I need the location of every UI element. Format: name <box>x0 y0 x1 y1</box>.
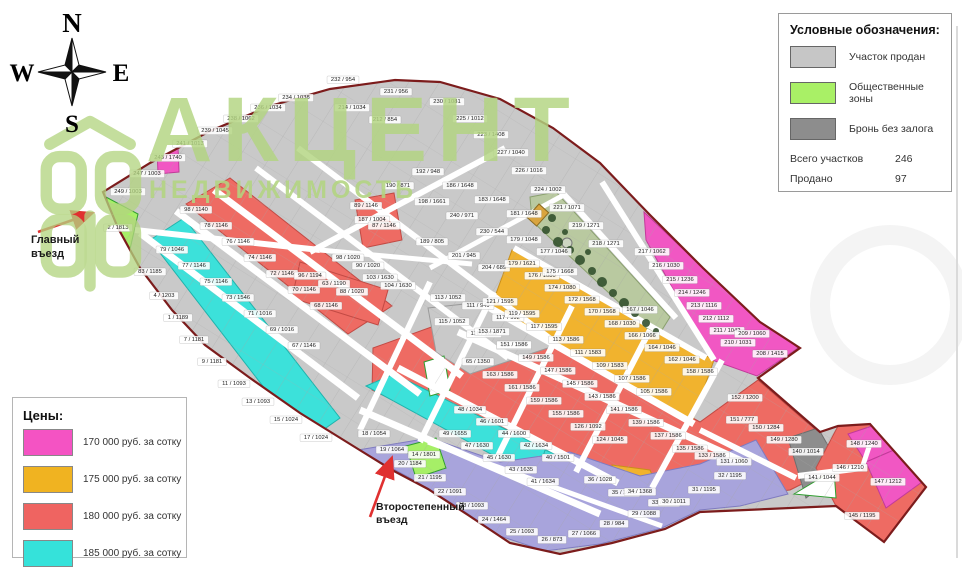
plot-label-text: 231 / 956 <box>384 89 408 95</box>
plot-label-text: 230 / 1081 <box>433 99 460 105</box>
plot-label-text: 159 / 1586 <box>530 398 557 404</box>
plot-label-text: 186 / 1648 <box>446 183 473 189</box>
plot-label-text: 1 / 1189 <box>168 315 189 321</box>
price-panel: Цены: 170 000 руб. за сотку 175 000 руб.… <box>12 397 187 558</box>
plot-label-text: 79 / 1046 <box>160 247 184 253</box>
compass-w: W <box>10 60 35 87</box>
plot-label-text: 238 / 1062 <box>227 116 254 122</box>
plot-label-text: 9 / 1181 <box>202 359 223 365</box>
plot-label-text: 212 / 854 <box>373 117 398 123</box>
plot-label-text: 42 / 1634 <box>524 443 549 449</box>
plot-label-text: 121 / 1595 <box>486 299 513 305</box>
plot-label-text: 44 / 1600 <box>502 431 526 437</box>
price-item-170: 170 000 руб. за сотку <box>23 429 176 456</box>
plot-label-text: 103 / 1630 <box>366 275 393 281</box>
plot-label-text: 247 / 1003 <box>133 171 160 177</box>
plot-label-text: 28 / 984 <box>604 521 626 527</box>
plot-label-text: 41 / 1634 <box>531 479 556 485</box>
compass-e: E <box>113 60 130 87</box>
plot-label-text: 73 / 1546 <box>226 295 250 301</box>
plot-label-text: 17 / 1024 <box>304 435 329 441</box>
plot-label-text: 22 / 1091 <box>438 489 462 495</box>
plot-label-text: 113 / 1052 <box>435 295 462 301</box>
plot-label-text: 31 / 1195 <box>692 487 716 493</box>
legend-item-public: Общественные зоны <box>790 81 940 105</box>
plot-label-text: 139 / 1586 <box>632 420 659 426</box>
plot-label-text: 239 / 1045 <box>201 128 228 134</box>
main-entrance-arrow <box>38 214 90 232</box>
plot-label-text: 192 / 948 <box>416 169 440 175</box>
plot-label-text: 164 / 1046 <box>648 345 675 351</box>
plot-label-text: 69 / 1016 <box>270 327 294 333</box>
plot-label-text: 170 / 1568 <box>588 309 615 315</box>
plot-label-text: 13 / 1093 <box>246 399 270 405</box>
plot-label-text: 236 / 1034 <box>254 105 282 111</box>
plot-label-text: 11 / 1093 <box>222 381 246 387</box>
plot-label-text: 74 / 1146 <box>248 255 272 261</box>
legend-swatch-public <box>790 82 836 104</box>
plot-label-text: 68 / 1146 <box>314 303 338 309</box>
legend-panel: Условные обозначения: Участок продан Общ… <box>778 13 952 192</box>
plot-label-text: 83 / 1185 <box>138 269 162 275</box>
price-swatch-red <box>23 503 73 530</box>
plot-label-text: 150 / 1284 <box>752 425 780 431</box>
plot-label-text: 241 / 1013 <box>176 141 203 147</box>
plot-label-text: 221 / 1071 <box>553 205 580 211</box>
plot-label-text: 18 / 1054 <box>362 431 387 437</box>
plot-label-text: 210 / 1031 <box>724 340 751 346</box>
plot-label-text: 209 / 1060 <box>738 331 765 337</box>
plot-label-text: 135 / 1586 <box>676 446 703 452</box>
plot-label-text: 98 / 1020 <box>336 255 360 261</box>
plot-label-text: 230 / 544 <box>480 229 505 235</box>
plot-label-text: 149 / 1280 <box>770 437 797 443</box>
plot-label-text: 141 / 1044 <box>808 475 836 481</box>
plot-label-text: 32 / 1195 <box>718 473 742 479</box>
plot-label-text: 30 / 1011 <box>662 499 686 505</box>
plot-label-text: 109 / 1583 <box>596 363 623 369</box>
plot-label-text: 183 / 1648 <box>478 197 505 203</box>
plot-label-text: 219 / 1271 <box>572 223 599 229</box>
legend-stat-sold: Продано 97 <box>790 173 940 185</box>
plot-label-text: 137 / 1586 <box>654 433 681 439</box>
plot-label-text: 107 / 1586 <box>618 376 645 382</box>
price-item-180: 180 000 руб. за сотку <box>23 503 176 530</box>
park-tree <box>575 255 585 265</box>
plot-label-text: 43 / 1635 <box>509 467 533 473</box>
plot-label-text: 77 / 1146 <box>182 263 206 269</box>
compass-s: S <box>65 111 79 138</box>
plot-label-text: 148 / 1240 <box>850 441 877 447</box>
legend-item-reserved: Бронь без залога <box>790 118 940 140</box>
legend-title: Условные обозначения: <box>790 23 940 37</box>
secondary-entrance-label: Второстепенный въезд <box>376 501 465 527</box>
main-entrance-label: Главный въезд <box>31 234 79 262</box>
compass-star <box>38 38 106 106</box>
plot-label-text: 19 / 1064 <box>380 447 405 453</box>
plot-label-text: 21 / 1195 <box>418 475 442 481</box>
plot-label-text: 163 / 1586 <box>486 372 513 378</box>
legend-stat-total: Всего участков 246 <box>790 153 940 165</box>
plot-label-text: 177 / 1046 <box>540 249 567 255</box>
plot-label-text: 98 / 1140 <box>184 207 208 213</box>
plot-label-text: 46 / 1601 <box>480 419 504 425</box>
plot-label-text: 232 / 954 <box>331 77 356 83</box>
plot-label-text: 214 / 1034 <box>338 105 366 111</box>
legend-swatch-reserved <box>790 118 836 140</box>
plot-label-text: 48 / 1034 <box>458 407 483 413</box>
plot-label-text: 78 / 1146 <box>204 223 228 229</box>
plot-label-text: 179 / 1048 <box>510 237 537 243</box>
plot-label-text: 104 / 1630 <box>384 283 411 289</box>
plot-label-text: 204 / 689 <box>482 265 506 271</box>
plot-label-text: 20 / 1184 <box>398 461 423 467</box>
plot-label-text: 105 / 1586 <box>640 389 667 395</box>
plot-label-text: 140 / 1014 <box>792 449 820 455</box>
plot-label-text: 181 / 1648 <box>510 211 537 217</box>
plot-label-text: 2 / 1813 <box>108 225 129 231</box>
plot-label-text: 151 / 777 <box>730 417 754 423</box>
plot-label-text: 212 / 1112 <box>703 316 730 322</box>
park-tree <box>642 319 650 327</box>
plot-label-text: 172 / 1568 <box>568 297 595 303</box>
plot-label-text: 166 / 1066 <box>628 333 655 339</box>
plot-label-text: 158 / 1586 <box>686 369 713 375</box>
plot-label-text: 143 / 1586 <box>588 394 615 400</box>
plot-label-text: 214 / 1246 <box>678 290 705 296</box>
plot-label-text: 146 / 1210 <box>836 465 863 471</box>
plot-label-text: 7 / 1181 <box>184 337 205 343</box>
plot-label-text: 131 / 1060 <box>720 459 747 465</box>
price-swatch-orange <box>23 466 73 493</box>
plot-label-text: 216 / 1030 <box>652 263 679 269</box>
plot-label-text: 25 / 1093 <box>510 529 534 535</box>
plot-label-text: 175 / 1668 <box>546 269 573 275</box>
plot-label-text: 36 / 1028 <box>588 477 612 483</box>
park-tree <box>548 214 556 222</box>
legend-item-sold: Участок продан <box>790 46 940 68</box>
plot-label-text: 243 / 1740 <box>154 155 181 161</box>
plot-label-text: 45 / 1630 <box>487 455 511 461</box>
park-tree <box>597 277 607 287</box>
plot-label-text: 14 / 1801 <box>412 452 436 458</box>
park-tree <box>542 226 550 234</box>
plot-label-text: 149 / 1586 <box>522 355 549 361</box>
plot-label-text: 240 / 971 <box>450 213 474 219</box>
plot-label-text: 27 / 1066 <box>572 531 596 537</box>
plot-label-text: 223 / 1408 <box>477 132 504 138</box>
price-swatch-cyan <box>23 540 73 567</box>
plot-label-text: 67 / 1146 <box>292 343 316 349</box>
price-item-185: 185 000 руб. за сотку <box>23 540 176 567</box>
price-title: Цены: <box>23 408 176 423</box>
plot-label-text: 168 / 1030 <box>608 321 635 327</box>
plot-label-text: 201 / 945 <box>452 253 476 259</box>
plot-label-text: 152 / 1200 <box>731 395 758 401</box>
faint-circle-watermark <box>820 235 960 375</box>
plot-label-text: 162 / 1046 <box>668 357 695 363</box>
compass-rose: N W E S <box>6 6 138 138</box>
plot-label-text: 225 / 1012 <box>456 116 483 122</box>
plot-label-text: 227 / 1040 <box>497 150 524 156</box>
plot-label-text: 218 / 1271 <box>592 241 619 247</box>
plot-label-text: 90 / 1020 <box>356 263 380 269</box>
park-tree <box>585 249 591 255</box>
plot-label-text: 76 / 1146 <box>226 239 250 245</box>
plot-label-text: 40 / 1501 <box>546 455 570 461</box>
plot-label-text: 145 / 1195 <box>849 513 876 519</box>
plot-label-text: 63 / 1190 <box>322 281 346 287</box>
park-tree <box>588 267 596 275</box>
plot-label-text: 155 / 1586 <box>552 411 579 417</box>
plot-label-text: 24 / 1464 <box>482 517 507 523</box>
plot-label-text: 96 / 1194 <box>298 273 323 279</box>
price-item-175: 175 000 руб. за сотку <box>23 466 176 493</box>
plot-label-text: 147 / 1212 <box>874 479 901 485</box>
right-edge-line <box>956 26 958 558</box>
plot-label-text: 190 / 871 <box>386 183 410 189</box>
plot-label-text: 65 / 1350 <box>466 359 490 365</box>
plot-label-text: 29 / 1088 <box>632 511 656 517</box>
plot-label-text: 71 / 1016 <box>248 311 272 317</box>
plot-label-text: 145 / 1586 <box>566 381 593 387</box>
plot-label-text: 34 / 1368 <box>628 489 652 495</box>
plot-label-text: 49 / 1655 <box>443 431 467 437</box>
plot-label-text: 174 / 1080 <box>548 285 575 291</box>
plot-label-text: 147 / 1586 <box>544 368 571 374</box>
plot-label-text: 161 / 1586 <box>508 385 535 391</box>
plot-label-text: 70 / 1146 <box>292 287 316 293</box>
plot-label-text: 217 / 1062 <box>638 249 665 255</box>
plot-label-text: 141 / 1586 <box>610 407 637 413</box>
plot-label-text: 124 / 1045 <box>596 437 623 443</box>
park-tree <box>562 229 568 235</box>
plot-label-text: 167 / 1046 <box>626 307 653 313</box>
plot-label-text: 72 / 1146 <box>270 271 294 277</box>
plot-label-text: 89 / 1146 <box>354 203 378 209</box>
park-tree <box>553 237 563 247</box>
plot-label-text: 15 / 1024 <box>274 417 299 423</box>
plot-label-text: 26 / 873 <box>542 537 563 543</box>
plot-label-text: 111 / 1583 <box>575 350 602 356</box>
plot-label-text: 215 / 1236 <box>666 277 693 283</box>
plot-label-text: 113 / 1586 <box>553 337 580 343</box>
plot-label-text: 88 / 1020 <box>340 289 364 295</box>
plot-label-text: 179 / 1621 <box>508 261 535 267</box>
park-tree <box>609 289 617 297</box>
compass-n: N <box>62 8 82 38</box>
plot-label-text: 126 / 1092 <box>574 424 601 430</box>
price-swatch-pink <box>23 429 73 456</box>
plot-label-text: 198 / 1661 <box>418 199 445 205</box>
plot-label-text: 153 / 1871 <box>478 329 505 335</box>
plot-label-text: 4 / 1203 <box>154 293 175 299</box>
plot-label-text: 226 / 1016 <box>515 168 542 174</box>
plot-label-text: 208 / 1415 <box>756 351 783 357</box>
plot-label-text: 249 / 1003 <box>114 189 141 195</box>
plot-label-text: 119 / 1595 <box>509 311 536 317</box>
plot-label-text: 115 / 1052 <box>439 319 466 325</box>
plot-label-text: 117 / 1595 <box>531 324 558 330</box>
plot-label-text: 47 / 1630 <box>465 443 489 449</box>
plot-label-text: 189 / 805 <box>420 239 444 245</box>
legend-swatch-sold <box>790 46 836 68</box>
plot-label-text: 75 / 1146 <box>204 279 228 285</box>
plot-label-text: 213 / 1116 <box>691 303 718 309</box>
plot-label-text: 87 / 1146 <box>372 223 396 229</box>
plot-label-text: 234 / 1038 <box>282 95 309 101</box>
plot-label-text: 151 / 1586 <box>500 342 527 348</box>
plot-label-text: 224 / 1002 <box>534 187 561 193</box>
